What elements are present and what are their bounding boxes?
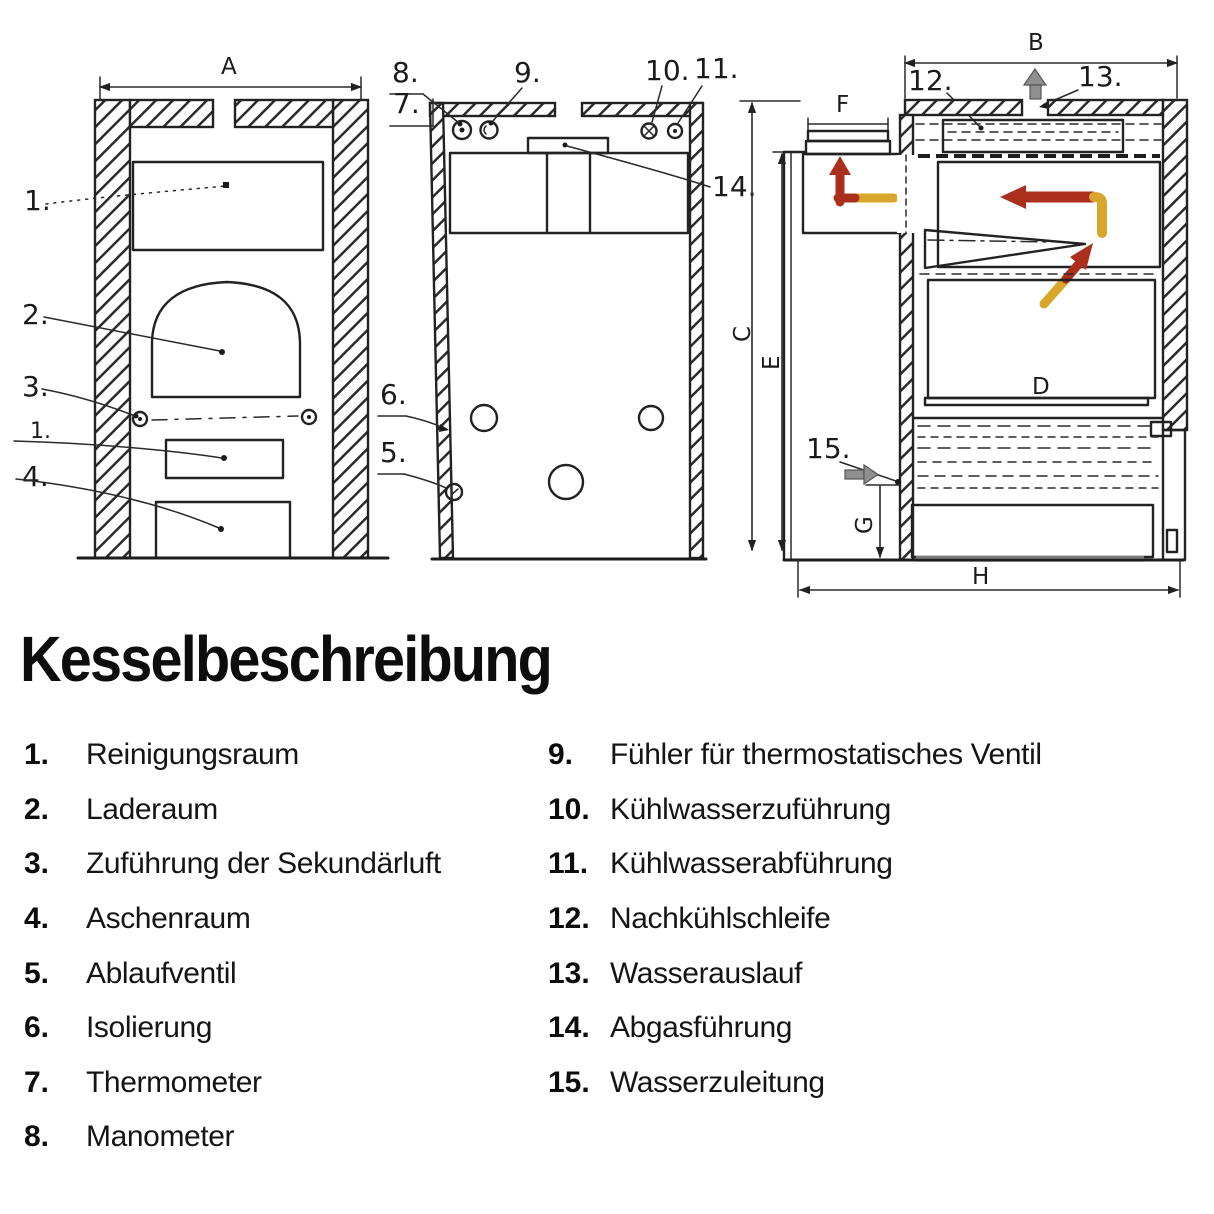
legend-num: 6. (0, 1011, 86, 1045)
legend-label: Ablaufventil (86, 957, 236, 991)
right-wall (690, 103, 703, 558)
dim-label-G: G (852, 516, 878, 534)
svg-text:1.: 1. (30, 419, 51, 444)
svg-text:8.: 8. (392, 56, 419, 89)
legend-item-3: 3. Zuführung der Sekundärluft (0, 837, 441, 892)
legend-label: Wasserzuleitung (610, 1066, 825, 1100)
dim-label-C: C (730, 326, 756, 342)
legend-item-6: 6. Isolierung (0, 1001, 441, 1056)
hole-left (471, 405, 497, 431)
svg-text:13.: 13. (1078, 60, 1123, 93)
legend-label: Laderaum (86, 793, 218, 827)
legend-label: Abgasführung (610, 1011, 792, 1045)
legend-num: 11. (524, 847, 610, 881)
boiler-technical-drawing: A 1. 2. 3. (0, 0, 1214, 612)
legend-item-7: 7. Thermometer (0, 1056, 441, 1111)
svg-text:5.: 5. (380, 436, 407, 469)
legend-num: 12. (524, 902, 610, 936)
legend-label: Thermometer (86, 1066, 262, 1100)
legend-label: Reinigungsraum (86, 738, 299, 772)
dimension-G: G (852, 485, 899, 557)
legend-column-left: 1. Reinigungsraum 2. Laderaum 3. Zuführu… (0, 728, 441, 1165)
legend-item-2: 2. Laderaum (0, 783, 441, 838)
svg-text:2.: 2. (22, 298, 49, 331)
front-section-drawing: A 1. 2. 3. (14, 54, 388, 558)
legend-item-8: 8. Manometer (0, 1110, 441, 1165)
legend-label: Fühler für thermostatisches Ventil (610, 738, 1042, 772)
legend-label: Zuführung der Sekundärluft (86, 847, 441, 881)
svg-text:10.: 10. (645, 54, 690, 87)
legend-item-4: 4. Aschenraum (0, 892, 441, 947)
legend-item-1: 1. Reinigungsraum (0, 728, 441, 783)
middle-plate (925, 398, 1148, 405)
legend-label: Wasserauslauf (610, 957, 802, 991)
dimension-H: H (798, 560, 1180, 597)
dim-label-E: E (759, 355, 785, 370)
top-wall-left (130, 100, 213, 127)
dim-label-F: F (836, 92, 849, 118)
cooling-water-connections (642, 124, 683, 139)
water-outlet-arrow (1024, 69, 1046, 99)
top-wall-left (905, 100, 1022, 115)
upper-gas-chamber (938, 162, 1160, 267)
right-wall (333, 100, 368, 558)
legend-num: 9. (524, 738, 610, 772)
svg-text:1.: 1. (24, 184, 51, 217)
flue-connector (806, 141, 890, 154)
hole-right (639, 406, 663, 430)
water-inlet-arrow (845, 465, 878, 484)
dim-label-H: H (972, 564, 989, 590)
left-wall (95, 100, 130, 558)
upper-chamber-box (450, 153, 688, 233)
svg-text:15.: 15. (806, 432, 851, 465)
hot-gas-arrow-horizontal (1000, 185, 1102, 233)
heat-exchanger-zone (913, 418, 1163, 488)
svg-text:6.: 6. (380, 378, 407, 411)
legend-num: 8. (0, 1120, 86, 1154)
front-body-wall (897, 115, 916, 560)
legend-item-11: 11. Kühlwasserabführung (524, 837, 1042, 892)
dim-label-D: D (1032, 374, 1050, 400)
legend-label: Aschenraum (86, 902, 250, 936)
legend-item-12: 12. Nachkühlschleife (524, 892, 1042, 947)
dim-label-B: B (1028, 30, 1044, 56)
right-wall (1163, 100, 1187, 430)
legend-item-14: 14. Abgasführung (524, 1001, 1042, 1056)
svg-text:12.: 12. (908, 64, 953, 97)
boiler-manual-page: { "title": "Kesselbeschreibung", "drawin… (0, 0, 1214, 1214)
hole-center (549, 465, 583, 499)
dimension-C: C (730, 101, 800, 550)
legend-item-5: 5. Ablaufventil (0, 946, 441, 1001)
legend-num: 3. (0, 847, 86, 881)
secondary-air-inlets (133, 410, 316, 426)
dimension-F: F (808, 92, 888, 131)
legend-item-9: 9. Fühler für thermostatisches Ventil (524, 728, 1042, 783)
legend-item-15: 15. Wasserzuleitung (524, 1056, 1042, 1111)
legend-num: 7. (0, 1066, 86, 1100)
loading-chamber-arch (152, 282, 300, 397)
mid-section-drawing: 8. 7. 9. 10. 11. 14. 6. (378, 52, 757, 559)
cleaning-chamber-door (133, 162, 323, 250)
legend-num: 2. (0, 793, 86, 827)
bottom-chamber (912, 505, 1153, 557)
legend-label: Kühlwasserabführung (610, 847, 893, 881)
top-wall-right (235, 100, 333, 127)
legend-column-right: 9. Fühler für thermostatisches Ventil 10… (524, 728, 1042, 1110)
legend-label: Nachkühlschleife (610, 902, 830, 936)
svg-text:7.: 7. (393, 87, 420, 120)
dimension-E: E (759, 152, 800, 550)
legend-item-13: 13. Wasserauslauf (524, 946, 1042, 1001)
callout-14: 14. (567, 146, 757, 203)
legend-num: 15. (524, 1066, 610, 1100)
legend-label: Manometer (86, 1120, 234, 1154)
flue-connector-top (808, 131, 888, 141)
dim-label-A: A (221, 54, 237, 80)
flue-gas-flow-arrow (829, 156, 894, 202)
baffle-wedge (925, 230, 1085, 268)
legend-num: 4. (0, 902, 86, 936)
legend-num: 1. (0, 738, 86, 772)
legend-num: 13. (524, 957, 610, 991)
callout-7: 7. (390, 87, 433, 126)
legend-num: 14. (524, 1011, 610, 1045)
top-wall-right (1048, 100, 1163, 115)
legend-num: 5. (0, 957, 86, 991)
side-section-drawing: B 12. 13. F (784, 30, 1187, 597)
legend-item-10: 10. Kühlwasserzuführung (524, 783, 1042, 838)
svg-text:11.: 11. (694, 52, 739, 85)
dimension-A: A (100, 54, 361, 104)
svg-text:14.: 14. (712, 170, 757, 203)
legend-label: Kühlwasserzuführung (610, 793, 891, 827)
svg-text:3.: 3. (22, 370, 49, 403)
page-title: Kesselbeschreibung (20, 622, 551, 696)
legend-num: 10. (524, 793, 610, 827)
legend-label: Isolierung (86, 1011, 212, 1045)
svg-text:9.: 9. (514, 56, 541, 89)
after-cooling-loop (916, 120, 1161, 156)
svg-text:4.: 4. (22, 460, 49, 493)
door-tab-lower (1167, 530, 1177, 552)
